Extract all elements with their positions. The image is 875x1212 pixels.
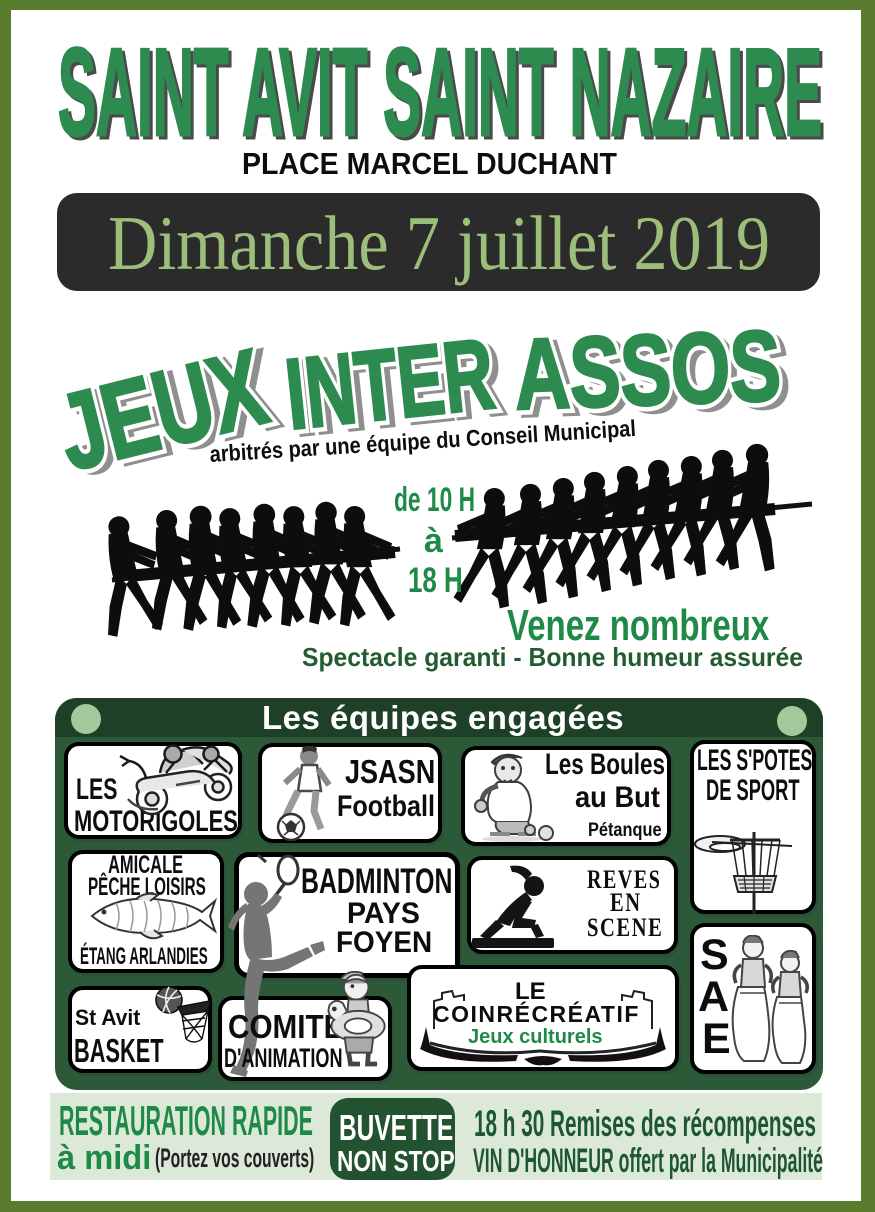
svg-text:ASSOS: ASSOS [513,310,783,431]
svg-text:SAINT AVIT SAINT NAZAIRE: SAINT AVIT SAINT NAZAIRE [58,30,822,152]
